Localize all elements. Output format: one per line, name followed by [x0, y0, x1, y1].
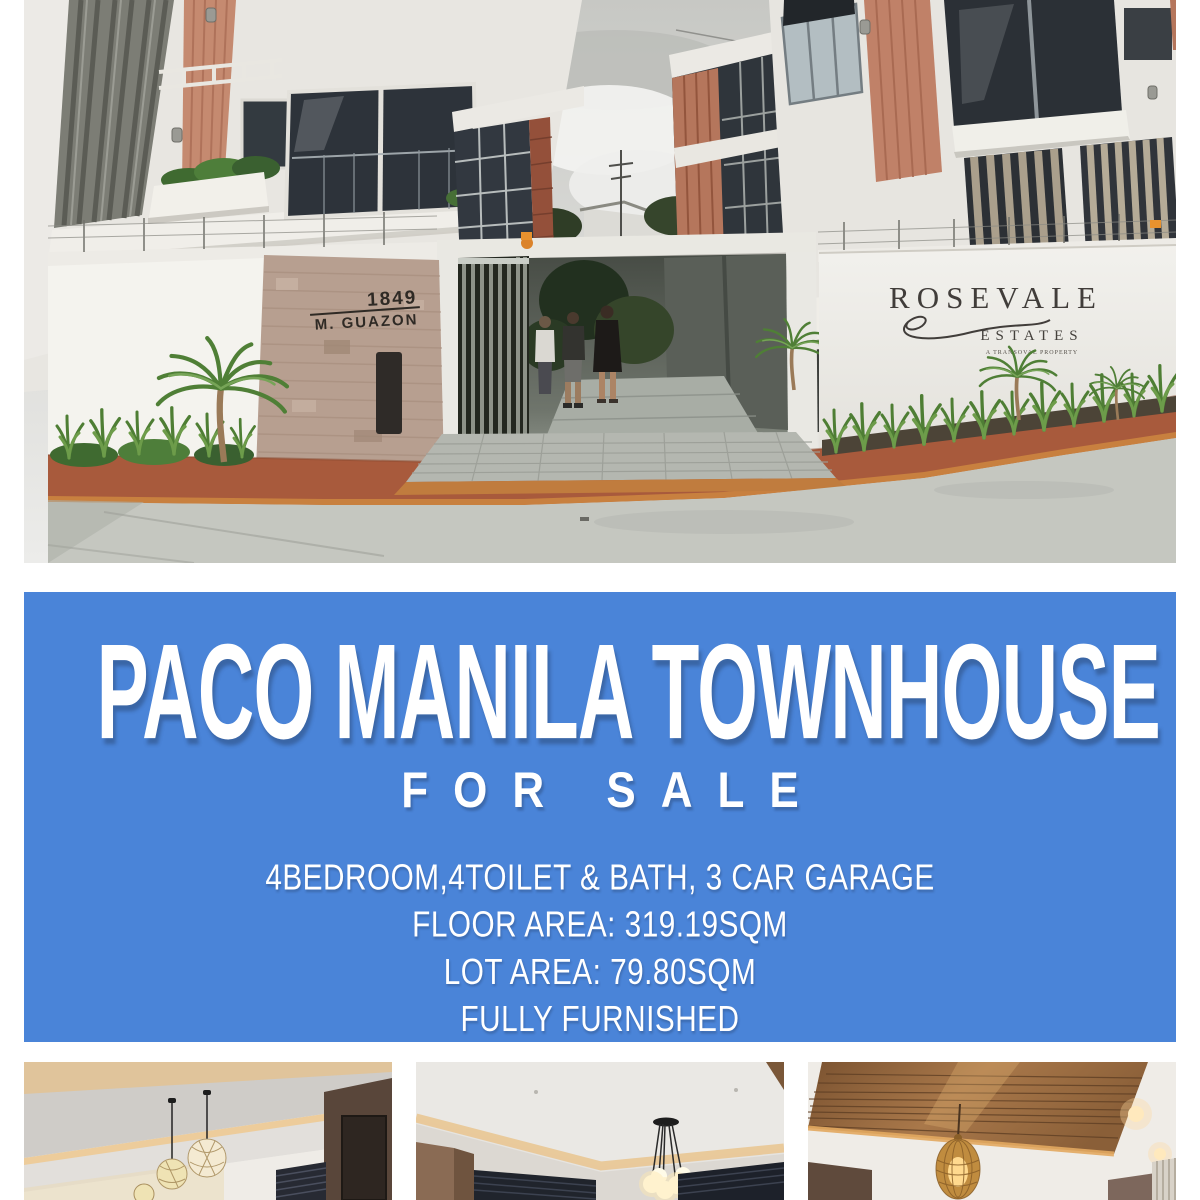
- neighbor-window: [1124, 8, 1172, 60]
- detail-furnishing: FULLY FURNISHED: [47, 996, 1153, 1042]
- estate-sign-name: ROSEVALE: [889, 280, 1103, 315]
- real-estate-flyer: 1849 M. GUAZON ROSEVALE ESTATES A TRANSO…: [0, 0, 1200, 1200]
- interior-gallery: [24, 1062, 1176, 1200]
- detail-floor-area: FLOOR AREA: 319.19SQM: [47, 901, 1153, 948]
- window-wall: [944, 0, 1122, 128]
- gallery-photo-living: [24, 1062, 392, 1200]
- gallery-photo-wood-ceiling: [808, 1062, 1176, 1200]
- stone-pillar: 1849 M. GUAZON: [256, 255, 444, 470]
- estate-sign-word2: ESTATES: [980, 328, 1083, 344]
- gallery-photo-dining: [416, 1062, 784, 1200]
- column: [416, 1142, 454, 1200]
- address-number: 1849: [367, 287, 418, 311]
- for-sale-label: FOR SALE: [376, 758, 823, 824]
- balcony-window: [286, 84, 478, 218]
- detail-lot-area: LOT AREA: 79.80SQM: [47, 948, 1153, 995]
- right-inner-facade: [669, 30, 786, 256]
- info-banner: PACO MANILA TOWNHOUSE FOR SALE 4BEDROOM,…: [24, 592, 1176, 1042]
- for-sale-row: FOR SALE: [24, 762, 1176, 830]
- glass-balcony: [782, 0, 862, 104]
- listing-details: 4BEDROOM,4TOILET & BATH, 3 CAR GARAGE FL…: [47, 854, 1153, 1042]
- hero-photo: 1849 M. GUAZON ROSEVALE ESTATES A TRANSO…: [24, 0, 1176, 563]
- driveway-apron: [394, 432, 850, 495]
- detail-rooms: 4BEDROOM,4TOILET & BATH, 3 CAR GARAGE: [47, 854, 1153, 901]
- listing-title-row: PACO MANILA TOWNHOUSE: [24, 630, 1176, 779]
- hero-photo-illustration: 1849 M. GUAZON ROSEVALE ESTATES A TRANSO…: [24, 0, 1176, 563]
- intercom-box: [376, 352, 402, 434]
- listing-title: PACO MANILA TOWNHOUSE: [97, 598, 1160, 783]
- wall-lamp: [206, 8, 216, 22]
